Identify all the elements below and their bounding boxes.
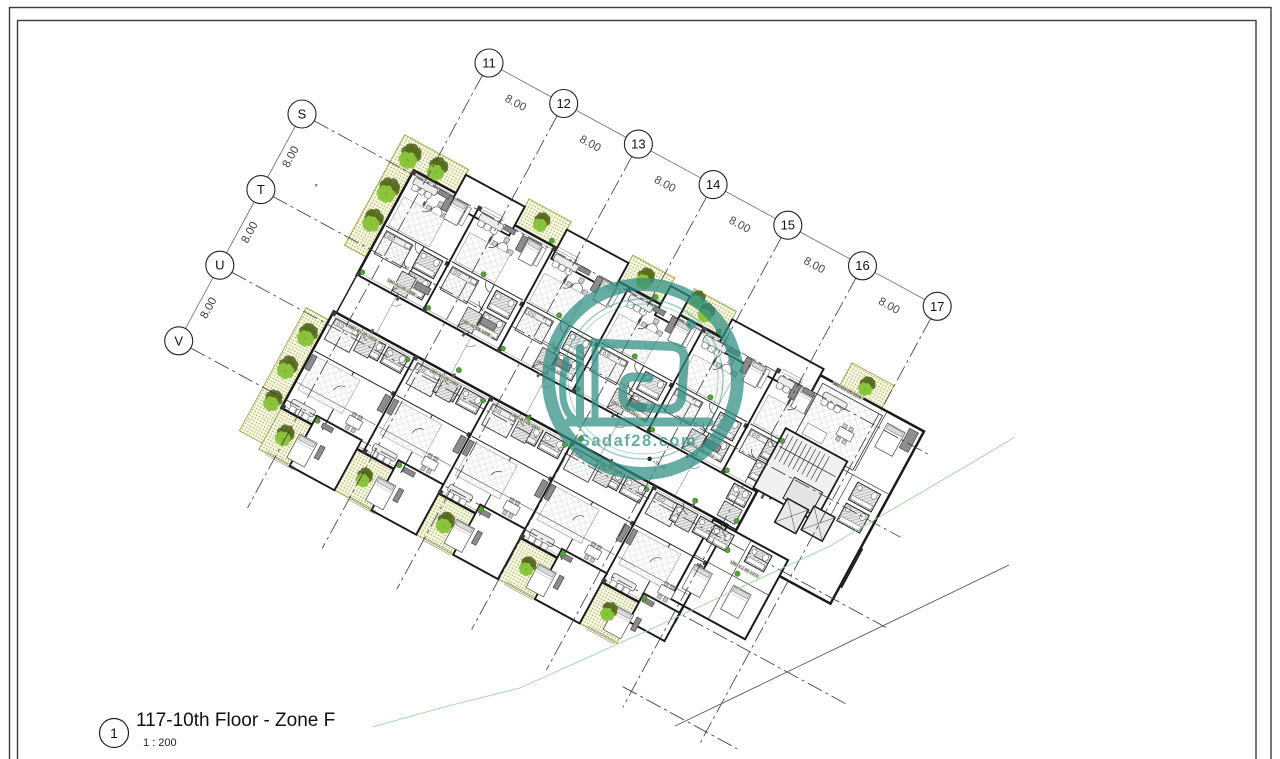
svg-text:17: 17 — [930, 299, 944, 314]
svg-text:12: 12 — [556, 96, 570, 111]
svg-text:1 : 200: 1 : 200 — [143, 737, 177, 749]
svg-text:14: 14 — [706, 177, 720, 192]
svg-text:S: S — [298, 107, 307, 122]
svg-text:13: 13 — [631, 137, 645, 152]
svg-text:1: 1 — [110, 725, 118, 741]
svg-text:U: U — [215, 258, 224, 273]
svg-text:T: T — [257, 182, 265, 197]
svg-text:V: V — [174, 333, 183, 348]
svg-text:15: 15 — [781, 218, 795, 233]
svg-text:11: 11 — [482, 56, 496, 71]
svg-text:16: 16 — [855, 258, 869, 273]
svg-text:117-10th Floor - Zone F: 117-10th Floor - Zone F — [136, 710, 335, 731]
svg-text:Sadaf28.com: Sadaf28.com — [579, 432, 697, 450]
